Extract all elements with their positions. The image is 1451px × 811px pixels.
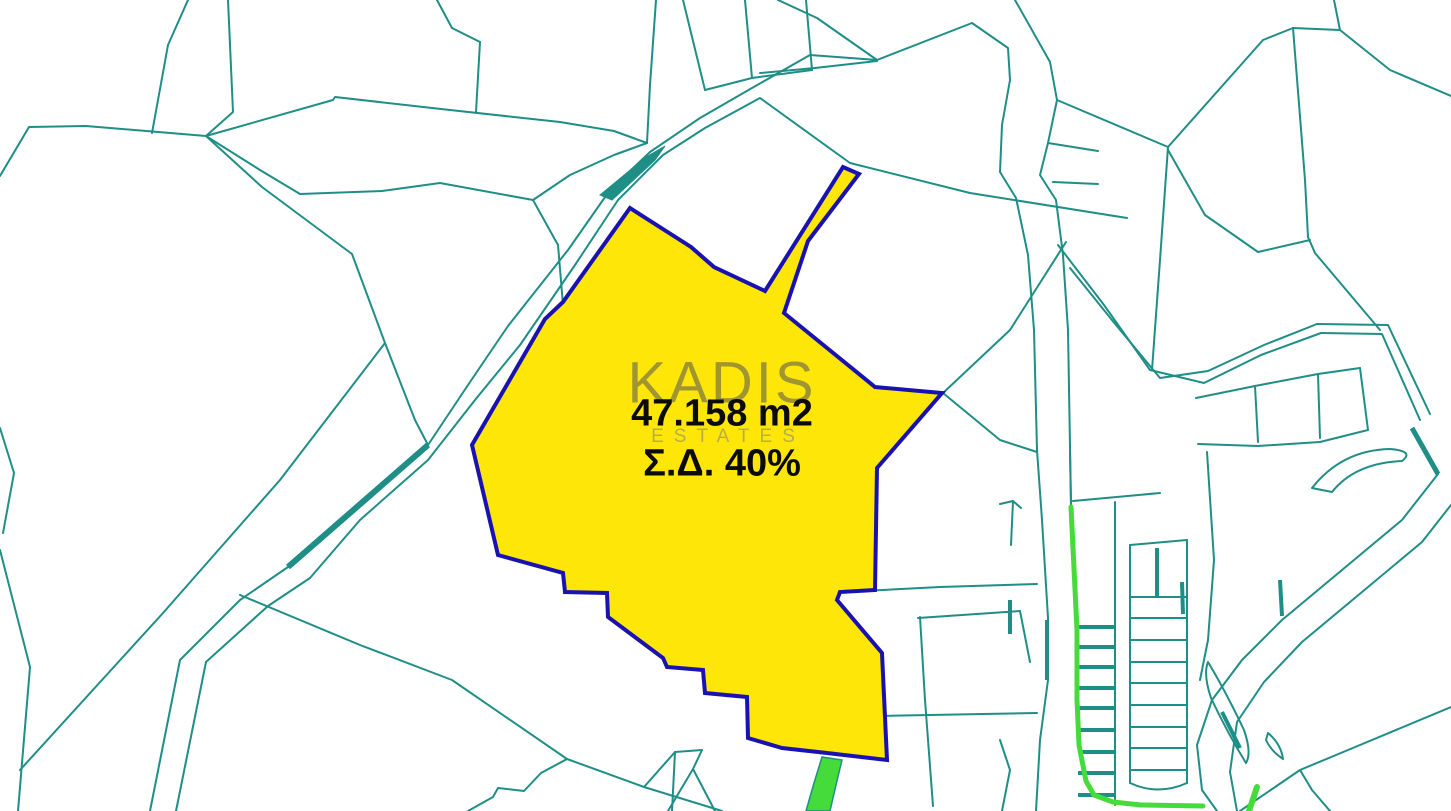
- parcel-boundary-line: [206, 0, 233, 136]
- parcel-boundary-line: [943, 242, 1066, 393]
- parcel-boundary-line: [240, 595, 567, 759]
- parcel-boundary-line: [920, 617, 933, 806]
- green-road-edge: [1249, 787, 1257, 811]
- parcel-boundary-line: [1230, 505, 1451, 811]
- parcel-boundary-line: [20, 343, 385, 770]
- parcel-boundary-line: [745, 0, 752, 78]
- parcel-boundary-path: [1130, 783, 1187, 790]
- parcel-boundary-line: [683, 0, 705, 90]
- parcel-boundary-line: [1168, 150, 1258, 252]
- parcel-boundary-line: [806, 0, 812, 70]
- parcel-boundary-line: [1255, 386, 1258, 442]
- parcel-boundary-path: [1206, 662, 1248, 763]
- parcel-boundary-line: [1340, 30, 1451, 96]
- parcel-boundary-line: [206, 136, 428, 445]
- parcel-boundary-line: [1293, 0, 1340, 30]
- parcel-boundary-line: [476, 42, 480, 112]
- parcel-boundary-line: [1320, 368, 1368, 442]
- parcel-boundary-line: [1300, 770, 1330, 811]
- parcel-boundary-line: [1011, 501, 1013, 545]
- parcel-boundary-line: [1308, 237, 1380, 330]
- parcel-boundary-line: [943, 393, 1037, 452]
- parcel-boundary-line: [1293, 28, 1308, 237]
- parcel-boundary-line: [206, 97, 647, 143]
- parcel-boundary-line: [1048, 143, 1098, 151]
- parcel-boundary-line: [1057, 40, 1263, 147]
- thick-boundary-segment: [1182, 582, 1183, 614]
- parcel-boundary-line: [760, 61, 877, 73]
- parcel-boundary-line: [0, 428, 14, 533]
- parcel-boundary-line: [647, 0, 656, 143]
- parcel-density-label: Σ.Δ. 40%: [643, 443, 801, 486]
- parcel-boundary-line: [0, 550, 30, 811]
- parcel-boundary-line: [1053, 182, 1098, 184]
- green-road-edge: [1071, 507, 1203, 806]
- parcel-boundary-line: [1198, 442, 1320, 446]
- narrow-strip-parcel: [600, 146, 665, 200]
- parcel-boundary-line: [468, 759, 567, 811]
- parcel-boundary-line: [1073, 493, 1160, 501]
- parcel-boundary-line: [918, 611, 1020, 618]
- green-road-strip: [806, 757, 842, 811]
- parcel-boundary-line: [1240, 707, 1451, 811]
- parcel-boundary-line: [1258, 240, 1310, 252]
- parcel-boundary-line: [1197, 474, 1438, 811]
- parcel-boundary-line: [152, 0, 188, 133]
- parcel-boundary-line: [705, 70, 812, 90]
- parcel-boundary-line: [850, 163, 1127, 218]
- parcel-area-label: 47.158 m2: [631, 393, 813, 436]
- parcel-boundary-line: [1317, 324, 1430, 414]
- parcel-boundary-line: [1070, 452, 1071, 505]
- thick-boundary-segment: [288, 445, 428, 567]
- parcel-boundary-line: [1200, 452, 1214, 680]
- parcel-boundary-line: [1000, 740, 1010, 811]
- parcel-boundary-line: [1020, 611, 1030, 662]
- parcel-boundary-line: [972, 23, 1037, 450]
- thick-boundary-segment: [1280, 580, 1282, 616]
- parcel-boundary-line: [1318, 374, 1320, 438]
- parcel-boundary-line: [437, 0, 480, 42]
- parcel-boundary-line: [778, 0, 877, 60]
- parcel-boundary-path: [1266, 733, 1283, 759]
- parcel-boundary-path: [1312, 449, 1406, 492]
- parcel-boundary-line: [1152, 147, 1168, 370]
- parcel-boundary-line: [1130, 540, 1187, 545]
- parcel-boundary-line: [1263, 28, 1293, 40]
- parcel-boundary-line: [1321, 333, 1420, 420]
- parcel-boundary-line: [206, 136, 533, 200]
- thick-boundary-segment: [1412, 428, 1438, 474]
- parcel-boundary-line: [1196, 368, 1360, 398]
- cadastral-map-viewport: KADIS ESTATES 47.158 m2 Σ.Δ. 40%: [0, 0, 1451, 811]
- parcel-boundary-line: [1058, 245, 1321, 383]
- parcel-boundary-line: [1070, 268, 1317, 378]
- parcel-boundary-line: [0, 126, 206, 176]
- parcel-boundary-line: [1000, 501, 1021, 508]
